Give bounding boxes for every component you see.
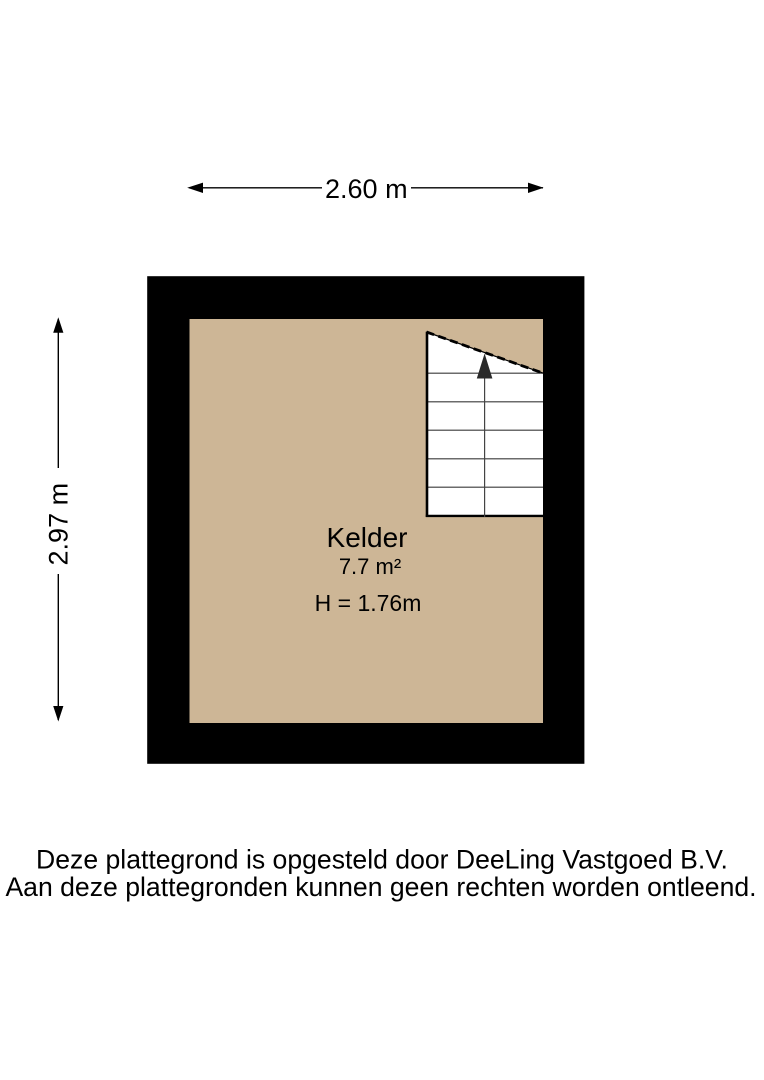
svg-text:7.7 m²: 7.7 m² [339, 554, 401, 579]
svg-text:2.60 m: 2.60 m [325, 174, 408, 204]
svg-text:2.97 m: 2.97 m [44, 483, 74, 566]
svg-text:H = 1.76m: H = 1.76m [315, 590, 422, 616]
svg-text:Aan deze plattegronden kunnen: Aan deze plattegronden kunnen geen recht… [5, 872, 756, 902]
svg-text:Deze plattegrond is opgesteld: Deze plattegrond is opgesteld door DeeLi… [36, 845, 728, 875]
svg-text:Kelder: Kelder [327, 522, 408, 553]
